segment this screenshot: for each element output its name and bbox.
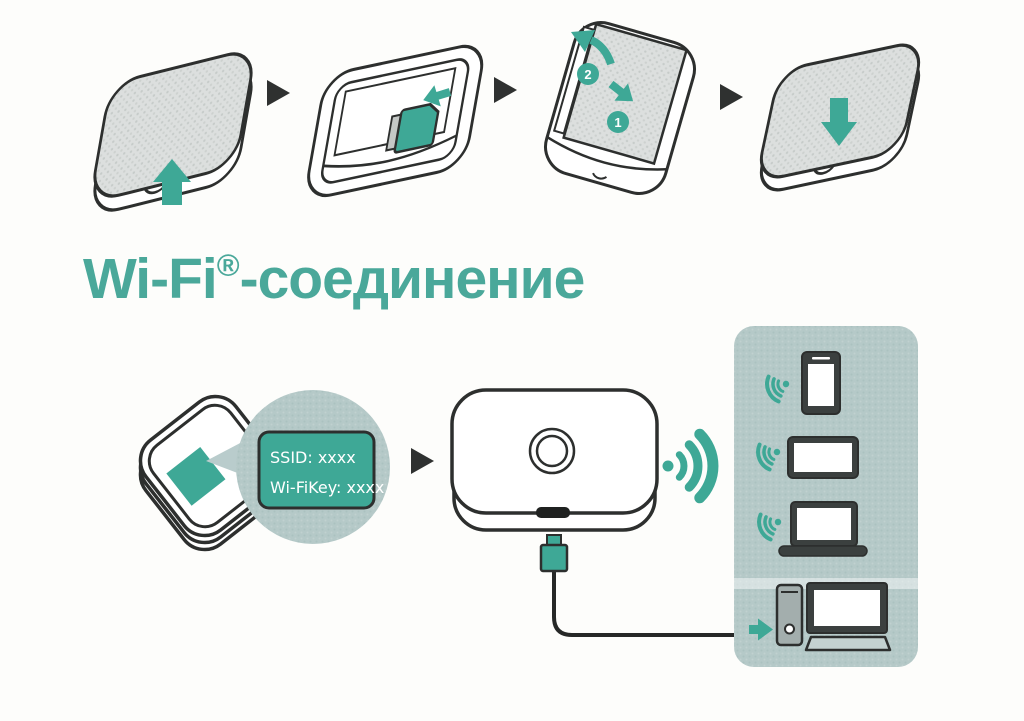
step4-close-cover — [748, 22, 933, 197]
smartphone-icon — [802, 352, 840, 414]
mobile-wifi-router-icon — [452, 390, 657, 530]
step3-insert-battery: 2 1 — [525, 8, 720, 200]
desktop-computer-icon — [777, 583, 890, 650]
device-open-body — [539, 16, 701, 200]
step1-open-cover — [58, 22, 288, 212]
wifi-waves-icon — [663, 434, 713, 498]
tablet-icon — [788, 437, 858, 478]
step-separator-arrow-icon — [266, 79, 291, 107]
step-separator-arrow-icon — [410, 447, 435, 475]
usb-connector-icon — [541, 535, 567, 571]
step2-insert-sim — [300, 30, 498, 208]
manual-page: 2 1 Wi-Fi®-соединение — [0, 0, 1024, 721]
router-connection — [440, 385, 742, 665]
device-open-tray — [304, 41, 487, 200]
ssid-text: SSID: xxxx — [270, 448, 356, 467]
step-badge-2: 2 — [577, 63, 599, 85]
router-back-label-callout: SSID: xxxx Wi-FiKey: xxxx — [90, 375, 400, 607]
svg-text:2: 2 — [584, 67, 591, 82]
title-brand: Wi-Fi — [83, 247, 217, 311]
wifi-key-text: Wi-FiKey: xxxx — [270, 478, 384, 497]
pc-tower — [777, 585, 802, 645]
pc-keyboard — [806, 637, 890, 650]
laptop-icon — [779, 502, 867, 556]
svg-text:1: 1 — [614, 115, 621, 130]
title-suffix: -соединение — [240, 247, 585, 311]
step-separator-arrow-icon — [719, 83, 744, 111]
step-badge-1: 1 — [607, 111, 629, 133]
page-title: Wi-Fi®-соединение — [83, 246, 584, 312]
usb-port — [536, 507, 570, 518]
registered-trademark-icon: ® — [217, 248, 240, 283]
step-separator-arrow-icon — [493, 76, 518, 104]
usb-cable-icon — [554, 569, 740, 635]
client-devices-panel — [733, 322, 923, 674]
